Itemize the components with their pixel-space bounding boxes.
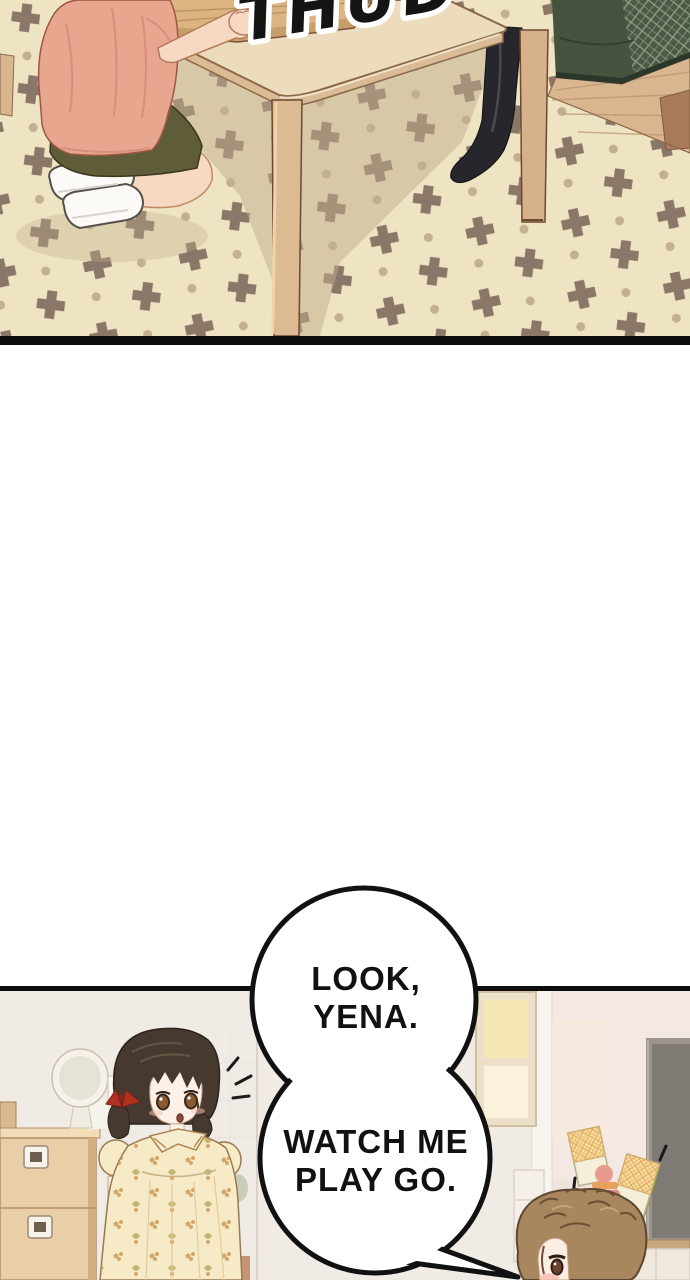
webtoon-page: THUD [0, 0, 690, 1280]
bubble-text-line: LOOK, [311, 960, 421, 997]
bubble-text-line: WATCH ME [283, 1123, 468, 1160]
bubble-text-line: PLAY GO. [295, 1161, 457, 1198]
bubble-text-line: YENA. [313, 998, 419, 1035]
speech-bubble: LOOK, YENA. WATCH ME PLAY GO. [252, 888, 518, 1277]
speech-bubble-layer: LOOK, YENA. WATCH ME PLAY GO. [0, 0, 690, 1280]
